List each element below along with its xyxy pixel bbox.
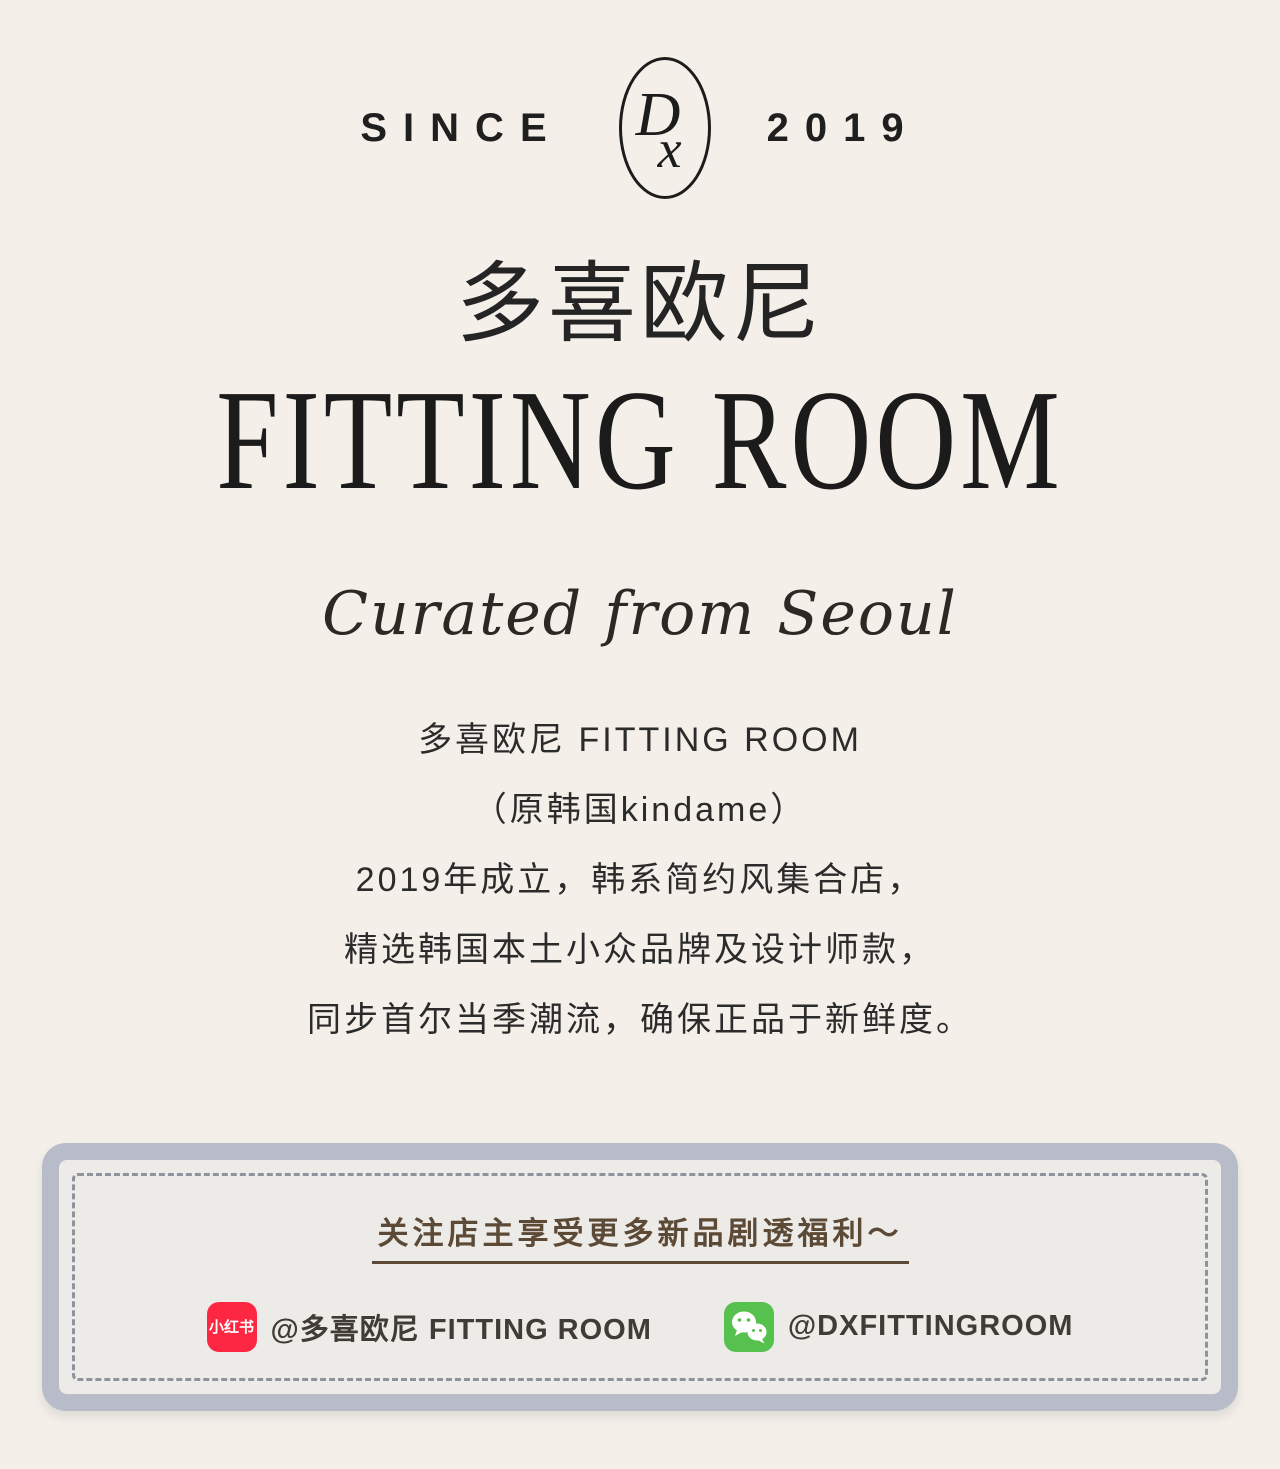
about-line: 多喜欧尼 FITTING ROOM	[307, 705, 973, 775]
dx-logo: D x	[619, 57, 711, 199]
header-row: SINCE D x 2019	[360, 58, 919, 198]
xiaohongshu-handle: @多喜欧尼 FITTING ROOM	[271, 1306, 652, 1348]
xiaohongshu-icon-label: 小红书	[209, 1316, 254, 1337]
about-line: 2019年成立，韩系简约风集合店，	[307, 845, 973, 915]
since-label: SINCE	[360, 106, 562, 151]
wechat-icon-glyph	[730, 1310, 768, 1344]
about-line: （原韩国kindame）	[307, 775, 973, 845]
follow-heading: 关注店主享受更多新品剧透福利～	[372, 1208, 909, 1264]
about-paragraph: 多喜欧尼 FITTING ROOM （原韩国kindame） 2019年成立，韩…	[307, 705, 973, 1055]
year-label: 2019	[767, 106, 920, 151]
brand-tagline: Curated from Seoul	[322, 579, 958, 649]
accounts-row: 小红书 @多喜欧尼 FITTING ROOM	[207, 1302, 1074, 1352]
follow-box: 关注店主享受更多新品剧透福利～ 小红书 @多喜欧尼 FITTING ROOM	[42, 1143, 1238, 1411]
xiaohongshu-icon: 小红书	[207, 1302, 257, 1352]
about-line: 精选韩国本土小众品牌及设计师款，	[307, 915, 973, 985]
follow-box-content: 关注店主享受更多新品剧透福利～ 小红书 @多喜欧尼 FITTING ROOM	[59, 1160, 1221, 1394]
wechat-handle: @DXFITTINGROOM	[788, 1310, 1074, 1343]
brand-english-name: FITTING ROOM	[216, 369, 1064, 512]
about-line: 同步首尔当季潮流，确保正品于新鲜度。	[307, 985, 973, 1055]
xiaohongshu-account: 小红书 @多喜欧尼 FITTING ROOM	[207, 1302, 652, 1352]
follow-box-inner: 关注店主享受更多新品剧透福利～ 小红书 @多喜欧尼 FITTING ROOM	[59, 1160, 1221, 1394]
brand-chinese-name: 多喜欧尼	[456, 256, 824, 353]
brand-english-name-wrap: FITTING ROOM	[216, 369, 1064, 519]
logo-letter-x: x	[658, 122, 682, 176]
wechat-account: @DXFITTINGROOM	[724, 1302, 1074, 1352]
wechat-icon	[724, 1302, 774, 1352]
